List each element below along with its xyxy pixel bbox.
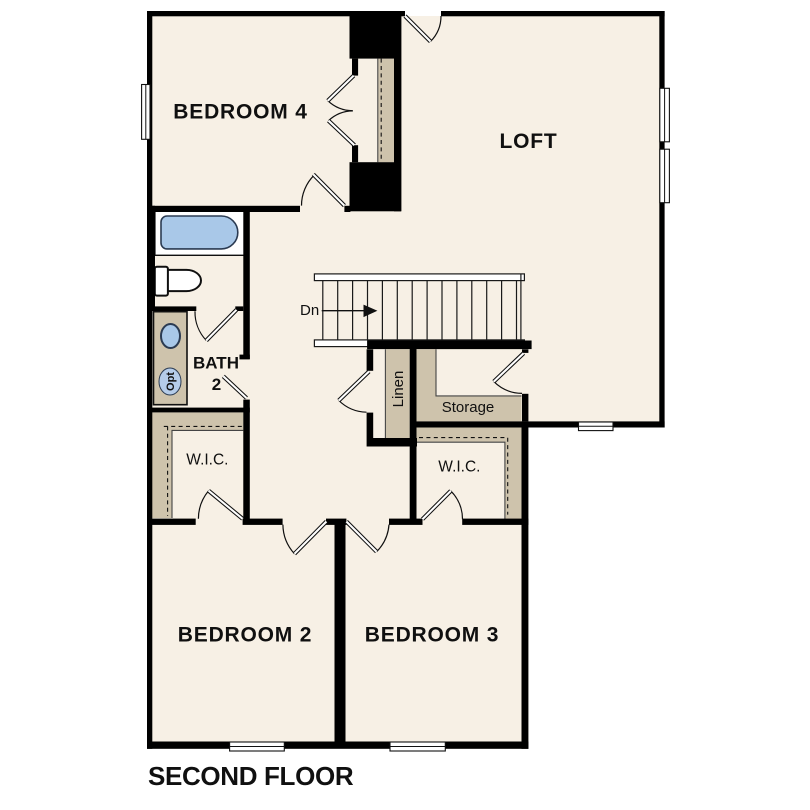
svg-text:Storage: Storage bbox=[442, 399, 495, 416]
svg-text:BEDROOM 2: BEDROOM 2 bbox=[178, 624, 312, 647]
svg-text:SECOND FLOOR: SECOND FLOOR bbox=[148, 761, 354, 791]
svg-text:LOFT: LOFT bbox=[499, 130, 557, 153]
svg-text:BEDROOM 4: BEDROOM 4 bbox=[173, 100, 307, 123]
svg-text:W.I.C.: W.I.C. bbox=[438, 459, 480, 476]
svg-text:BEDROOM 3: BEDROOM 3 bbox=[365, 624, 499, 647]
svg-text:W.I.C.: W.I.C. bbox=[186, 452, 228, 469]
svg-text:Linen: Linen bbox=[390, 371, 407, 408]
svg-text:Dn: Dn bbox=[300, 302, 319, 319]
svg-text:2: 2 bbox=[212, 375, 221, 394]
svg-text:BATH: BATH bbox=[193, 354, 239, 373]
svg-text:Opt: Opt bbox=[165, 372, 177, 391]
